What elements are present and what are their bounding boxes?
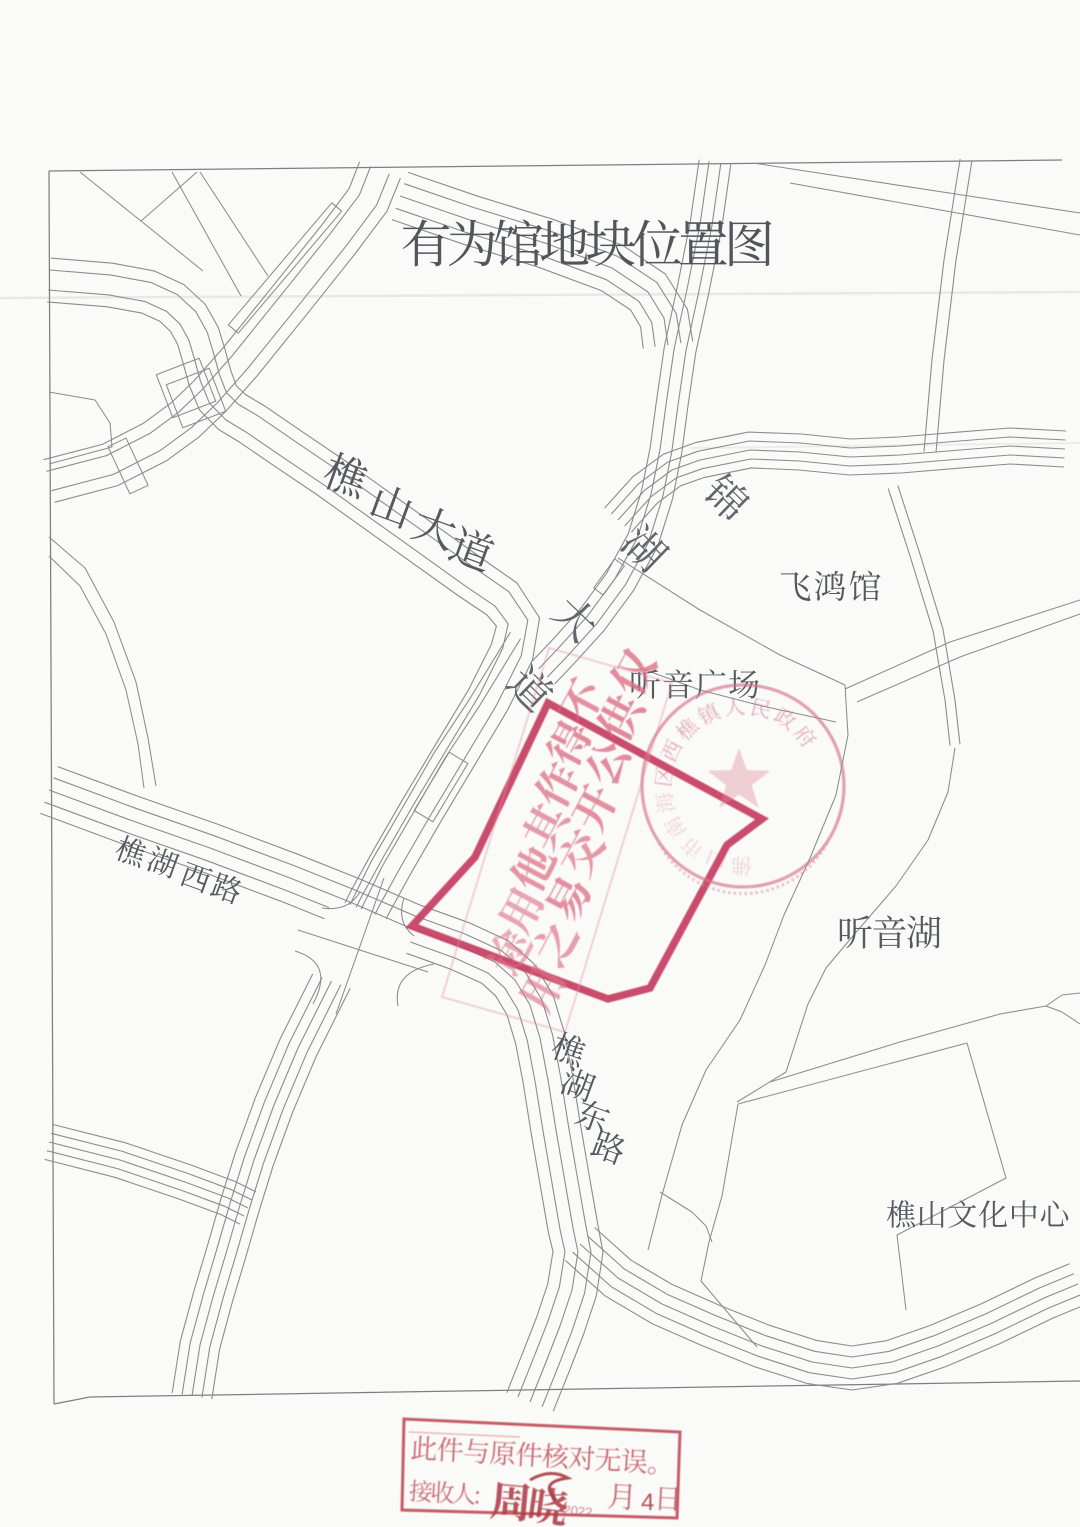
svg-text:2022: 2022 [563,1502,593,1520]
svg-text:4: 4 [641,1489,654,1516]
